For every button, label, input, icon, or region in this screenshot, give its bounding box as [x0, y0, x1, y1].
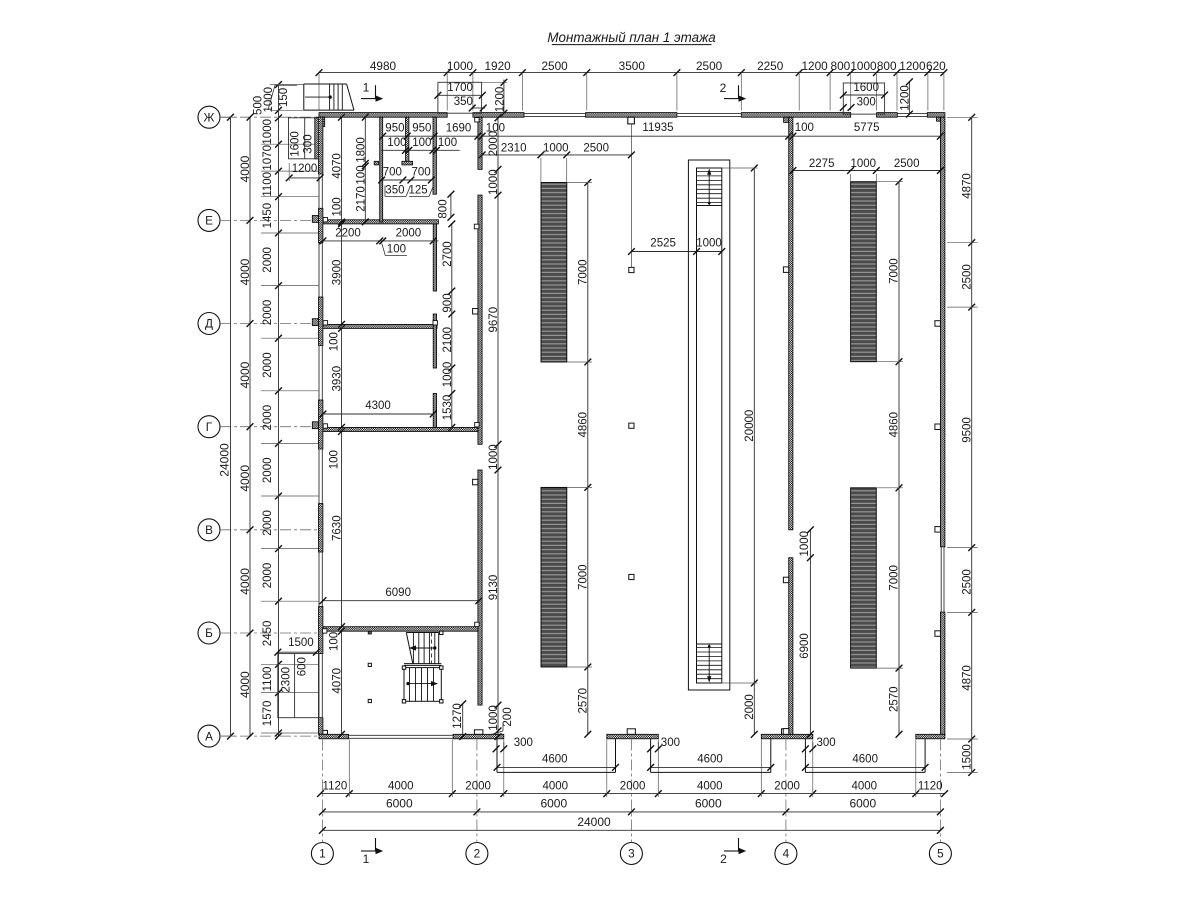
svg-text:700: 700	[383, 167, 402, 179]
svg-text:2570: 2570	[888, 686, 900, 712]
svg-text:100: 100	[329, 332, 341, 351]
svg-text:4860: 4860	[577, 412, 589, 438]
svg-text:1000: 1000	[851, 158, 877, 170]
svg-text:350: 350	[385, 184, 404, 196]
svg-text:9130: 9130	[488, 575, 500, 601]
svg-text:4000: 4000	[238, 361, 252, 388]
svg-text:900: 900	[442, 293, 454, 312]
svg-text:100: 100	[486, 123, 505, 135]
svg-text:350: 350	[454, 96, 473, 108]
svg-text:3930: 3930	[332, 366, 344, 392]
svg-text:Е: Е	[205, 214, 213, 228]
svg-text:100: 100	[387, 244, 406, 256]
svg-text:2500: 2500	[583, 142, 609, 154]
svg-text:2000: 2000	[262, 352, 274, 378]
svg-text:24000: 24000	[577, 815, 611, 829]
svg-text:600: 600	[296, 657, 308, 676]
svg-text:100: 100	[795, 122, 814, 134]
svg-text:150: 150	[278, 88, 290, 107]
svg-text:4000: 4000	[697, 780, 723, 792]
svg-text:1690: 1690	[446, 123, 472, 135]
svg-text:1: 1	[319, 847, 326, 861]
svg-text:1500: 1500	[962, 744, 974, 770]
svg-text:4000: 4000	[238, 465, 252, 492]
svg-text:В: В	[205, 523, 213, 537]
svg-text:1: 1	[363, 852, 370, 866]
svg-text:1000: 1000	[262, 119, 274, 145]
svg-text:2200: 2200	[335, 227, 361, 239]
svg-text:6000: 6000	[540, 797, 567, 811]
svg-text:3: 3	[628, 847, 635, 861]
svg-text:3900: 3900	[332, 260, 344, 286]
svg-text:2450: 2450	[262, 621, 274, 647]
svg-text:300: 300	[661, 737, 680, 749]
svg-text:700: 700	[412, 167, 431, 179]
svg-text:2000: 2000	[620, 780, 646, 792]
svg-text:2000: 2000	[774, 780, 800, 792]
svg-text:2300: 2300	[281, 667, 293, 693]
svg-text:1100: 1100	[262, 667, 274, 692]
svg-text:2: 2	[720, 81, 727, 95]
svg-text:800: 800	[437, 199, 449, 218]
svg-text:А: А	[205, 729, 213, 743]
svg-text:Г: Г	[206, 420, 213, 434]
svg-text:6090: 6090	[385, 587, 411, 599]
svg-text:100: 100	[438, 137, 457, 149]
svg-text:2000: 2000	[262, 510, 274, 536]
svg-text:2000: 2000	[262, 458, 274, 484]
svg-text:Б: Б	[205, 626, 213, 640]
svg-text:125: 125	[409, 184, 428, 196]
svg-text:6000: 6000	[849, 797, 876, 811]
svg-text:1600: 1600	[853, 82, 879, 94]
svg-text:2000: 2000	[262, 405, 274, 431]
svg-text:300: 300	[857, 96, 876, 108]
svg-text:Ж: Ж	[204, 110, 215, 124]
svg-text:300: 300	[303, 134, 315, 153]
svg-text:100: 100	[412, 137, 431, 149]
svg-text:1000: 1000	[850, 59, 877, 73]
svg-text:4600: 4600	[852, 754, 878, 766]
svg-text:1920: 1920	[484, 59, 511, 73]
svg-text:1200: 1200	[900, 85, 912, 111]
svg-text:2500: 2500	[696, 59, 723, 73]
svg-text:1: 1	[363, 81, 370, 95]
svg-text:1800: 1800	[355, 137, 367, 163]
svg-text:2500: 2500	[541, 59, 568, 73]
svg-text:1000: 1000	[442, 362, 454, 388]
svg-text:7630: 7630	[332, 515, 344, 541]
svg-text:100: 100	[332, 197, 344, 216]
svg-text:950: 950	[385, 123, 404, 135]
svg-text:1570: 1570	[262, 701, 274, 727]
svg-text:1450: 1450	[262, 203, 274, 229]
svg-text:800: 800	[877, 59, 897, 73]
svg-text:4600: 4600	[697, 754, 723, 766]
svg-text:4860: 4860	[888, 412, 900, 438]
svg-text:6900: 6900	[799, 633, 811, 659]
svg-text:2000: 2000	[262, 300, 274, 326]
svg-text:2000: 2000	[396, 227, 422, 239]
svg-text:2000: 2000	[744, 694, 756, 720]
svg-text:2000: 2000	[262, 247, 274, 273]
svg-text:1070: 1070	[262, 145, 274, 171]
svg-text:2700: 2700	[442, 241, 454, 267]
svg-text:950: 950	[412, 123, 431, 135]
svg-text:9500: 9500	[962, 417, 974, 443]
svg-text:100: 100	[355, 165, 367, 184]
svg-text:1700: 1700	[447, 82, 473, 94]
svg-text:4000: 4000	[238, 155, 252, 182]
svg-text:4: 4	[783, 847, 790, 861]
svg-text:2570: 2570	[577, 688, 589, 714]
svg-text:4070: 4070	[332, 668, 344, 694]
svg-text:4070: 4070	[332, 153, 344, 179]
svg-text:2: 2	[474, 847, 481, 861]
svg-text:1270: 1270	[452, 703, 464, 729]
svg-text:1200: 1200	[899, 59, 926, 73]
svg-text:7000: 7000	[577, 259, 589, 285]
svg-text:1000: 1000	[488, 444, 500, 470]
svg-text:2100: 2100	[442, 327, 454, 353]
svg-text:4000: 4000	[543, 780, 569, 792]
svg-text:6000: 6000	[695, 797, 722, 811]
svg-text:300: 300	[514, 737, 533, 749]
svg-text:4980: 4980	[370, 59, 397, 73]
svg-text:1120: 1120	[918, 780, 943, 792]
svg-text:4000: 4000	[852, 780, 878, 792]
svg-text:3500: 3500	[619, 59, 646, 73]
svg-text:4600: 4600	[542, 754, 568, 766]
svg-text:1200: 1200	[801, 59, 828, 73]
svg-text:7000: 7000	[577, 564, 589, 590]
svg-text:1000: 1000	[543, 142, 569, 154]
svg-text:2525: 2525	[650, 238, 676, 250]
svg-text:20000: 20000	[744, 410, 756, 442]
svg-text:4870: 4870	[962, 173, 974, 199]
svg-text:300: 300	[817, 737, 836, 749]
svg-text:1200: 1200	[494, 87, 506, 113]
svg-text:2000: 2000	[465, 780, 491, 792]
svg-text:7000: 7000	[888, 565, 900, 591]
svg-text:1000: 1000	[696, 238, 722, 250]
svg-text:4000: 4000	[238, 568, 252, 595]
svg-text:1200: 1200	[292, 163, 318, 175]
svg-text:100: 100	[387, 137, 406, 149]
svg-text:2000: 2000	[262, 563, 274, 589]
svg-text:2500: 2500	[962, 569, 974, 595]
svg-text:4870: 4870	[962, 665, 974, 691]
svg-text:1000: 1000	[447, 59, 474, 73]
svg-text:620: 620	[926, 59, 946, 73]
svg-text:1600: 1600	[290, 131, 302, 157]
svg-text:7000: 7000	[888, 258, 900, 284]
svg-text:1530: 1530	[442, 395, 454, 421]
svg-text:200: 200	[502, 707, 514, 726]
svg-text:5: 5	[937, 847, 944, 861]
svg-text:1000: 1000	[488, 705, 500, 731]
svg-text:800: 800	[831, 59, 851, 73]
svg-text:2275: 2275	[809, 158, 835, 170]
svg-text:100: 100	[329, 450, 341, 469]
svg-text:24000: 24000	[218, 443, 232, 477]
svg-text:11935: 11935	[642, 122, 673, 134]
svg-text:1000: 1000	[799, 531, 811, 557]
svg-text:1100: 1100	[262, 172, 274, 197]
svg-text:6000: 6000	[386, 797, 413, 811]
svg-text:100: 100	[329, 632, 341, 651]
svg-text:1120: 1120	[323, 780, 348, 792]
svg-text:Монтажный план 1 этажа: Монтажный план 1 этажа	[547, 30, 715, 45]
svg-text:9670: 9670	[488, 307, 500, 333]
svg-text:2310: 2310	[501, 142, 527, 154]
svg-text:2500: 2500	[962, 264, 974, 290]
svg-text:2500: 2500	[894, 158, 920, 170]
svg-text:4000: 4000	[238, 258, 252, 285]
svg-text:5775: 5775	[854, 122, 880, 134]
svg-text:2250: 2250	[757, 59, 784, 73]
svg-text:1500: 1500	[288, 637, 314, 649]
svg-text:4300: 4300	[365, 400, 391, 412]
svg-text:Д: Д	[205, 317, 213, 331]
svg-text:2170: 2170	[355, 186, 367, 212]
svg-text:2000: 2000	[488, 131, 500, 157]
svg-text:4000: 4000	[238, 671, 252, 698]
svg-text:4000: 4000	[388, 780, 414, 792]
svg-text:2: 2	[720, 852, 727, 866]
svg-text:1000: 1000	[488, 169, 500, 195]
